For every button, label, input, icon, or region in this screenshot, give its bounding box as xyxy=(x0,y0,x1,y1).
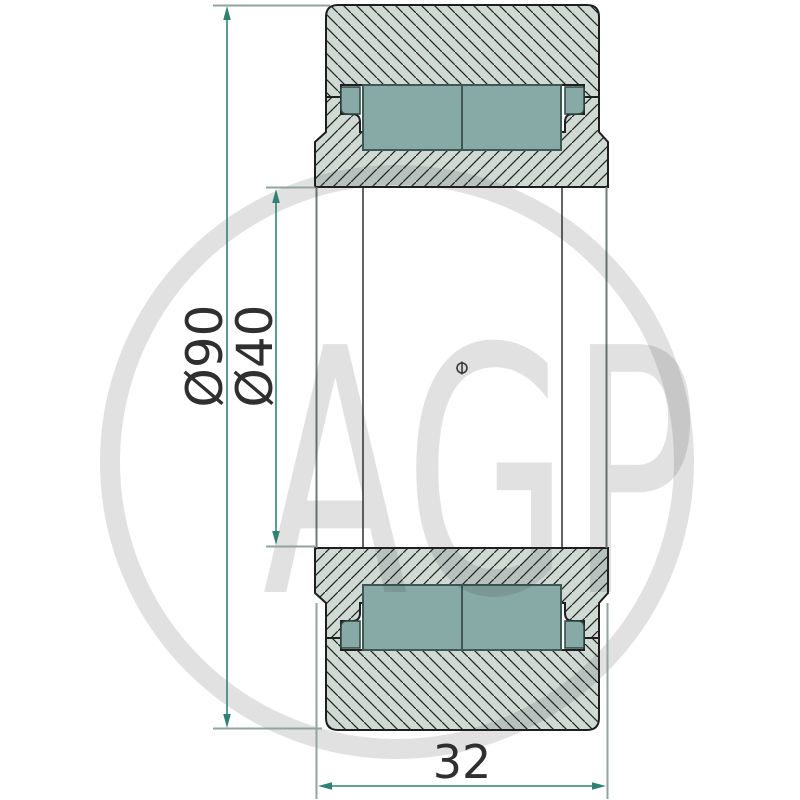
watermark-text: AGP xyxy=(263,277,698,673)
width-label: 32 xyxy=(433,735,492,789)
bore-diameter-label: Ø40 xyxy=(226,305,284,408)
bearing-cross-section-drawing: AGP Ø90 Ø40 32 xyxy=(0,0,800,800)
cage-segment-top-right xyxy=(565,87,584,114)
roller-top-left xyxy=(363,85,462,150)
roller-top-right xyxy=(462,85,561,150)
outer-ring-top-section xyxy=(326,5,599,97)
center-mark xyxy=(457,362,467,375)
cage-segment-top-left xyxy=(341,87,360,114)
